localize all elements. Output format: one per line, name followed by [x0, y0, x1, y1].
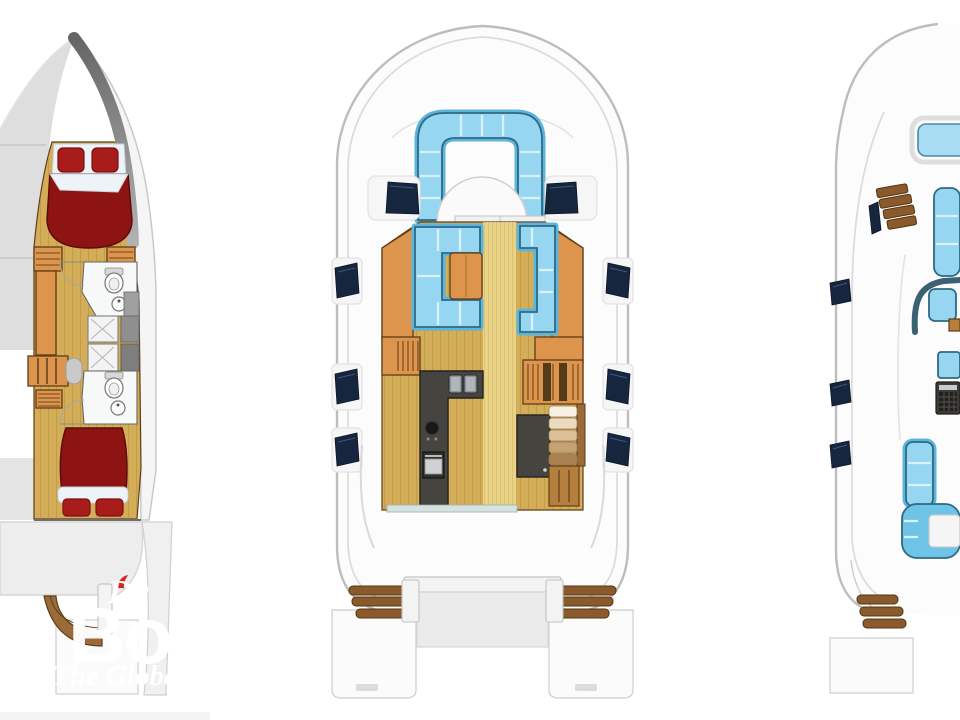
- window: [606, 369, 630, 404]
- fridge: [517, 415, 550, 477]
- hull-stern: [0, 520, 210, 720]
- sunpad: [934, 188, 960, 276]
- window: [606, 433, 630, 466]
- salon-rear-door: [387, 505, 517, 512]
- pillow: [96, 499, 123, 516]
- sink: [111, 401, 125, 415]
- sideboard: [535, 337, 583, 363]
- window: [830, 441, 851, 468]
- grill-station: [936, 382, 960, 414]
- aft-cabin-bed: [58, 428, 128, 516]
- boat-deck-plans-image: Da Bo The Globa: [0, 0, 960, 720]
- swim-platform: [830, 638, 913, 693]
- aft-bench: [906, 442, 933, 506]
- hull-accommodation-plan: [0, 38, 210, 720]
- main-deck-plan: [332, 26, 633, 698]
- flybridge-plan: [830, 24, 960, 693]
- helm-seat: [929, 289, 956, 321]
- console-top: [938, 352, 960, 378]
- window: [830, 279, 851, 305]
- aft-platform: [417, 592, 548, 647]
- cooktop: [425, 421, 439, 435]
- vanity-counter: [124, 292, 139, 318]
- wardrobe: [36, 271, 56, 355]
- aft-beam: [404, 577, 561, 592]
- aft-settee: [902, 504, 960, 558]
- companionway-stairs: [549, 404, 585, 506]
- sideboard: [382, 337, 420, 375]
- side-deck-gray-lower: [0, 458, 34, 520]
- sink: [451, 377, 460, 391]
- sunpad: [918, 124, 960, 156]
- aft-deck: [0, 522, 143, 595]
- window: [830, 380, 851, 406]
- pillow: [63, 499, 90, 516]
- forward-cabin-bed: [47, 144, 132, 248]
- cockpit-table: [929, 515, 960, 547]
- deck-plans-canvas: [0, 0, 960, 720]
- window: [335, 433, 359, 466]
- pillow: [58, 148, 84, 172]
- sink: [466, 377, 475, 391]
- window: [606, 263, 630, 298]
- window: [335, 369, 359, 404]
- step-chest: [28, 356, 68, 386]
- salon-wall: [382, 228, 413, 340]
- pillow: [92, 148, 118, 172]
- vanity: [36, 390, 62, 408]
- window: [335, 263, 359, 298]
